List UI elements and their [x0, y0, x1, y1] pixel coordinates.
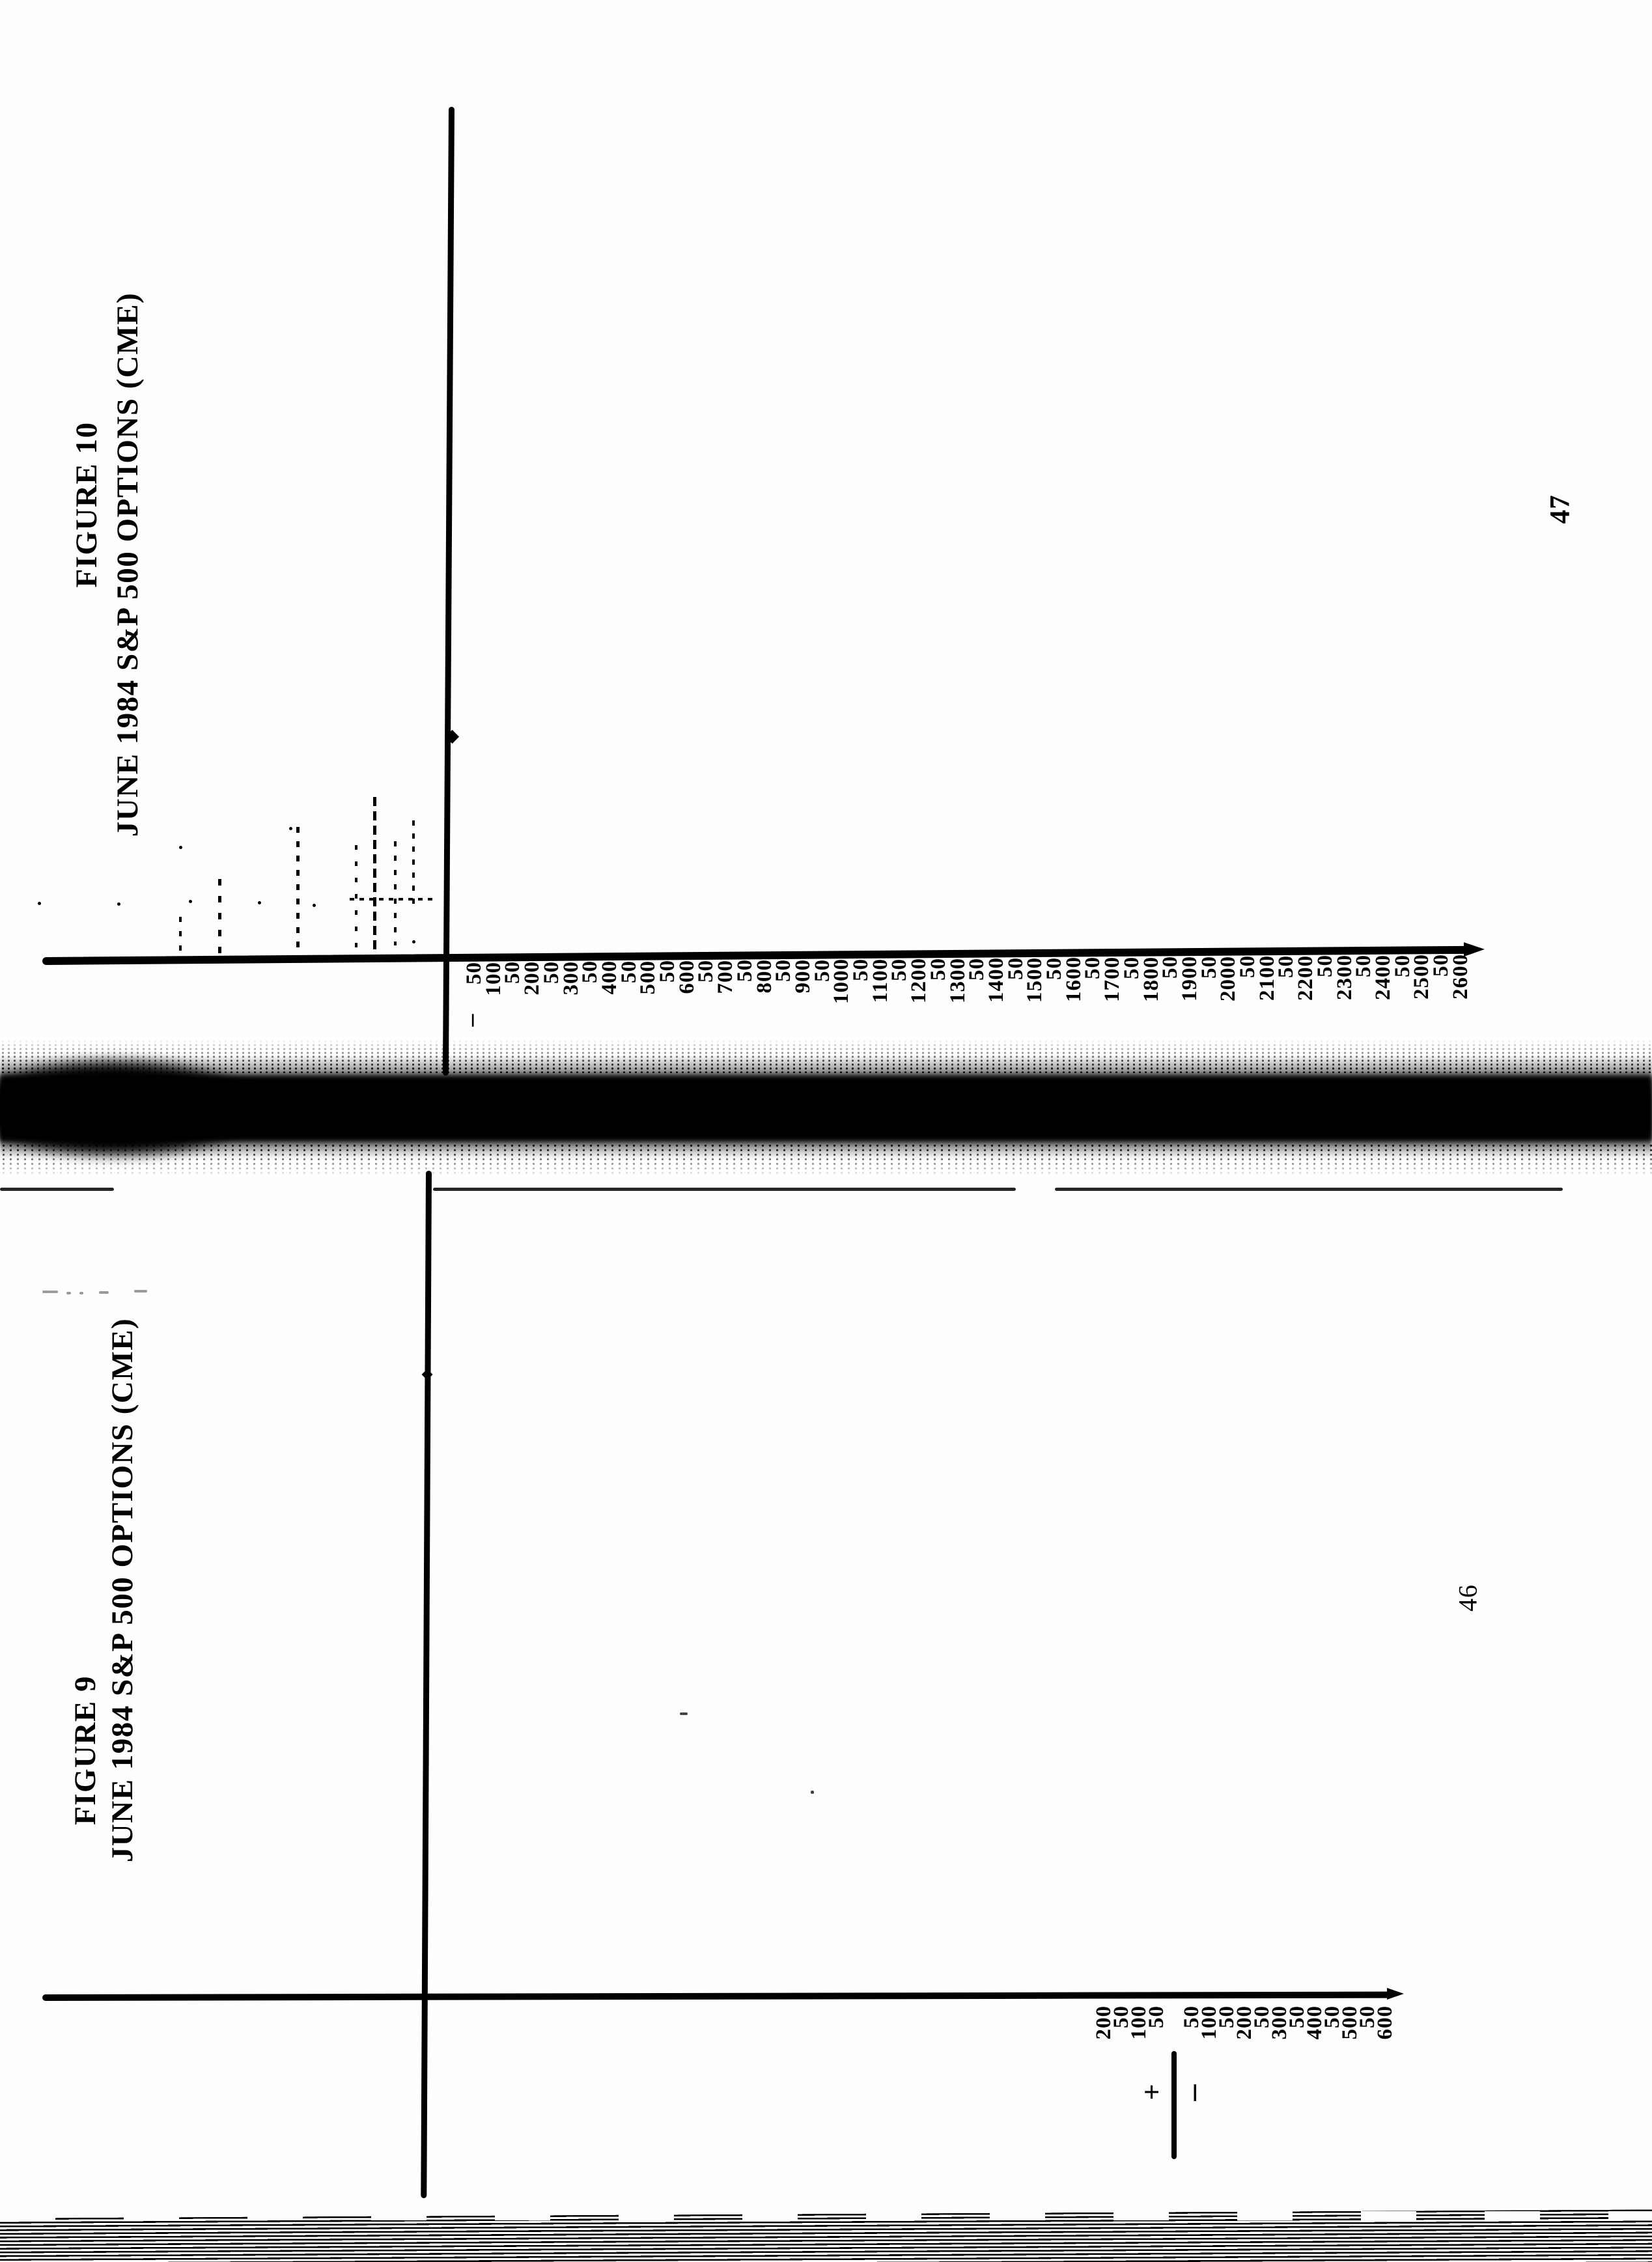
figure10-stray-dot — [258, 901, 261, 904]
gutter-thin-line-segment — [1055, 1188, 1563, 1191]
scanned-document-page: FIGURE 10 JUNE 1984 S&P 500 OPTIONS (CME… — [0, 0, 1652, 2262]
figure9-faint-mark — [42, 1291, 58, 1293]
gutter-speckle-bottom — [0, 1143, 1652, 1177]
figure10-title-line1: FIGURE 10 — [69, 421, 104, 587]
figure9-zero-axis-stub — [1171, 2051, 1177, 2159]
figure9-value-axis-line — [42, 1992, 1393, 2001]
figure9-faint-mark — [79, 1292, 83, 1294]
figure10-dotted-data-row — [350, 898, 435, 901]
figure9-price-axis-line — [421, 1171, 432, 2198]
figure10-stray-dot — [313, 904, 316, 907]
figure9-axis-diamond-marker — [422, 1369, 433, 1380]
figure9-axis-tick-label-negative: 600 — [1375, 2005, 1396, 2040]
figure9-axis-arrowhead — [1387, 1988, 1404, 2000]
figure10-axis-tick-label: 2600 — [1450, 954, 1472, 999]
figure9-faint-mark — [66, 1292, 71, 1294]
figure9-minus-sign: – — [1173, 2085, 1211, 2101]
figure10-stray-dot — [179, 846, 182, 849]
figure9-plot-speck — [811, 1791, 814, 1794]
gutter-thin-line-segment — [433, 1188, 1016, 1191]
figure10-price-axis-line — [443, 107, 455, 1076]
figure10-stray-dot — [412, 940, 415, 943]
book-page-edges-top-notches — [0, 2211, 1652, 2220]
figure9-axis-tick-label-positive: 50 — [1146, 2005, 1168, 2028]
figure10-stray-dot — [189, 900, 192, 903]
figure10-dotted-data-column — [373, 797, 376, 956]
figure9-faint-mark — [134, 1290, 147, 1292]
figure9-plot-speck — [680, 1712, 688, 1715]
figure9-title-line2: JUNE 1984 S&P 500 OPTIONS (CME) — [105, 1318, 140, 1862]
figure10-dotted-data-column — [179, 917, 182, 955]
figure10-dotted-data-column — [412, 820, 415, 906]
figure10-title-line2: JUNE 1984 S&P 500 OPTIONS (CME) — [110, 292, 145, 837]
page-number-47: 47 — [1545, 495, 1576, 524]
figure9-faint-mark — [99, 1291, 109, 1294]
figure10-dotted-data-column — [218, 879, 221, 956]
page-number-46: 46 — [1453, 1584, 1483, 1612]
figure10-stray-dot — [117, 902, 120, 906]
figure10-stray-dot — [289, 827, 292, 830]
gutter-thin-line-segment — [0, 1188, 114, 1191]
figure10-dotted-data-column — [296, 827, 300, 956]
figure9-plus-sign: + — [1136, 2084, 1169, 2100]
figure9-title-line1: FIGURE 9 — [68, 1675, 103, 1825]
figure10-negative-region-minus-sign: – — [456, 1014, 485, 1027]
figure10-dotted-data-column — [394, 841, 397, 945]
figure10-stray-dot — [38, 902, 41, 905]
